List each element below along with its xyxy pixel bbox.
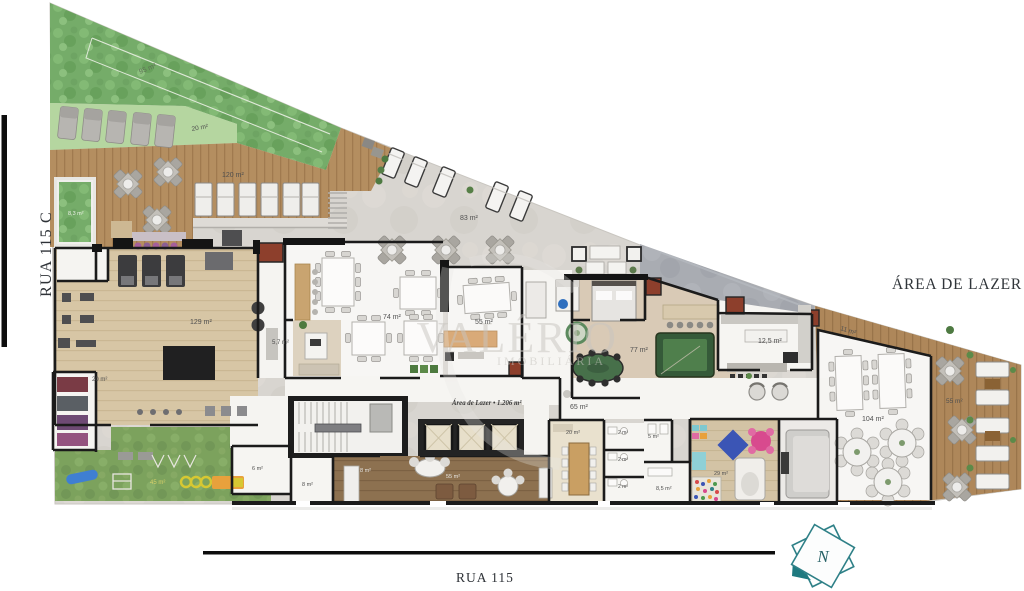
svg-text:104 m²: 104 m² — [862, 416, 884, 423]
svg-text:5 m²: 5 m² — [648, 434, 659, 440]
svg-text:55 m²: 55 m² — [446, 474, 460, 480]
svg-text:55 m²: 55 m² — [946, 398, 963, 405]
svg-text:2 m²: 2 m² — [618, 430, 628, 436]
svg-text:2 m²: 2 m² — [618, 484, 628, 490]
svg-text:RUA 115: RUA 115 — [456, 570, 514, 585]
svg-text:83 m²: 83 m² — [460, 215, 479, 222]
svg-text:Área de Lazer • 1.206 m²: Área de Lazer • 1.206 m² — [451, 399, 522, 407]
svg-text:45 m²: 45 m² — [150, 480, 165, 486]
svg-text:RUA 115 C: RUA 115 C — [38, 211, 55, 297]
svg-text:120 m²: 120 m² — [222, 172, 244, 179]
svg-text:74 m²: 74 m² — [383, 314, 402, 321]
svg-text:5,7 m²: 5,7 m² — [272, 340, 289, 346]
svg-text:29 m²: 29 m² — [714, 471, 728, 477]
svg-text:IMOBILIÁRIA: IMOBILIÁRIA — [497, 354, 606, 368]
svg-text:77 m²: 77 m² — [630, 347, 649, 354]
svg-text:129 m²: 129 m² — [190, 319, 212, 326]
svg-text:20 m²: 20 m² — [92, 377, 107, 383]
svg-text:8,5 m²: 8,5 m² — [656, 486, 672, 492]
svg-text:8 m²: 8 m² — [360, 468, 371, 474]
svg-text:N: N — [816, 547, 830, 566]
svg-text:2 m²: 2 m² — [618, 457, 628, 463]
svg-text:6 m²: 6 m² — [252, 466, 263, 472]
svg-text:20 m²: 20 m² — [566, 430, 580, 436]
svg-text:ÁREA DE LAZER: ÁREA DE LAZER — [892, 276, 1022, 293]
svg-text:8 m²: 8 m² — [302, 482, 313, 488]
svg-text:55 m²: 55 m² — [475, 319, 494, 326]
svg-text:65 m²: 65 m² — [570, 404, 589, 411]
svg-text:8,3 m²: 8,3 m² — [68, 211, 84, 217]
svg-text:12,5 m²: 12,5 m² — [758, 338, 782, 345]
